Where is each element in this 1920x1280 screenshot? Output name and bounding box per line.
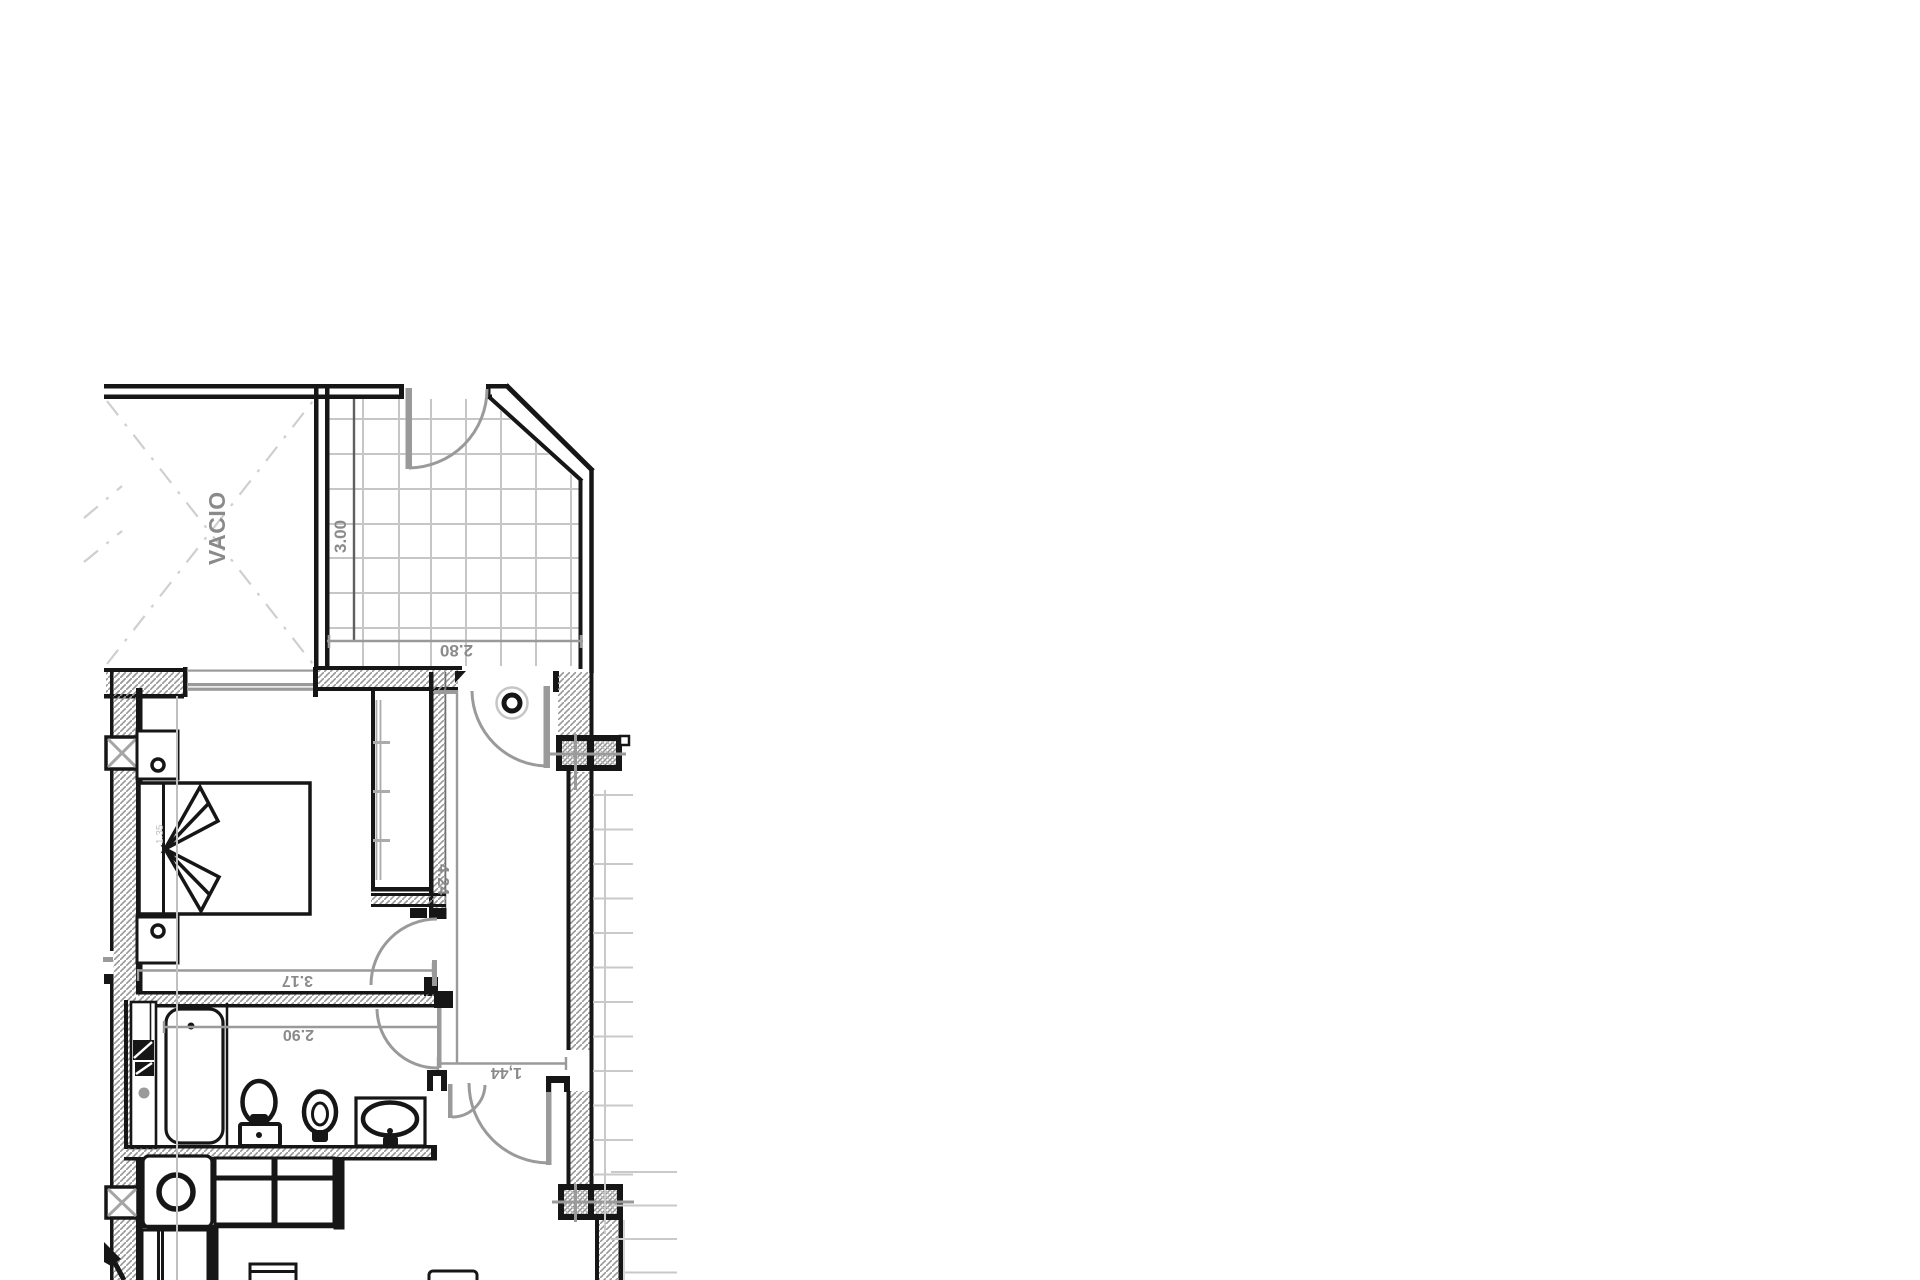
svg-text:2.90: 2.90 <box>283 1026 314 1043</box>
svg-text:1,44: 1,44 <box>491 1064 522 1081</box>
svg-text:3.00: 3.00 <box>331 520 350 553</box>
svg-text:1.35: 1.35 <box>155 824 166 844</box>
svg-text:VACIO: VACIO <box>204 491 230 565</box>
svg-text:3.17: 3.17 <box>282 972 313 989</box>
svg-text:4.24: 4.24 <box>434 864 451 895</box>
svg-text:2.80: 2.80 <box>440 641 473 660</box>
